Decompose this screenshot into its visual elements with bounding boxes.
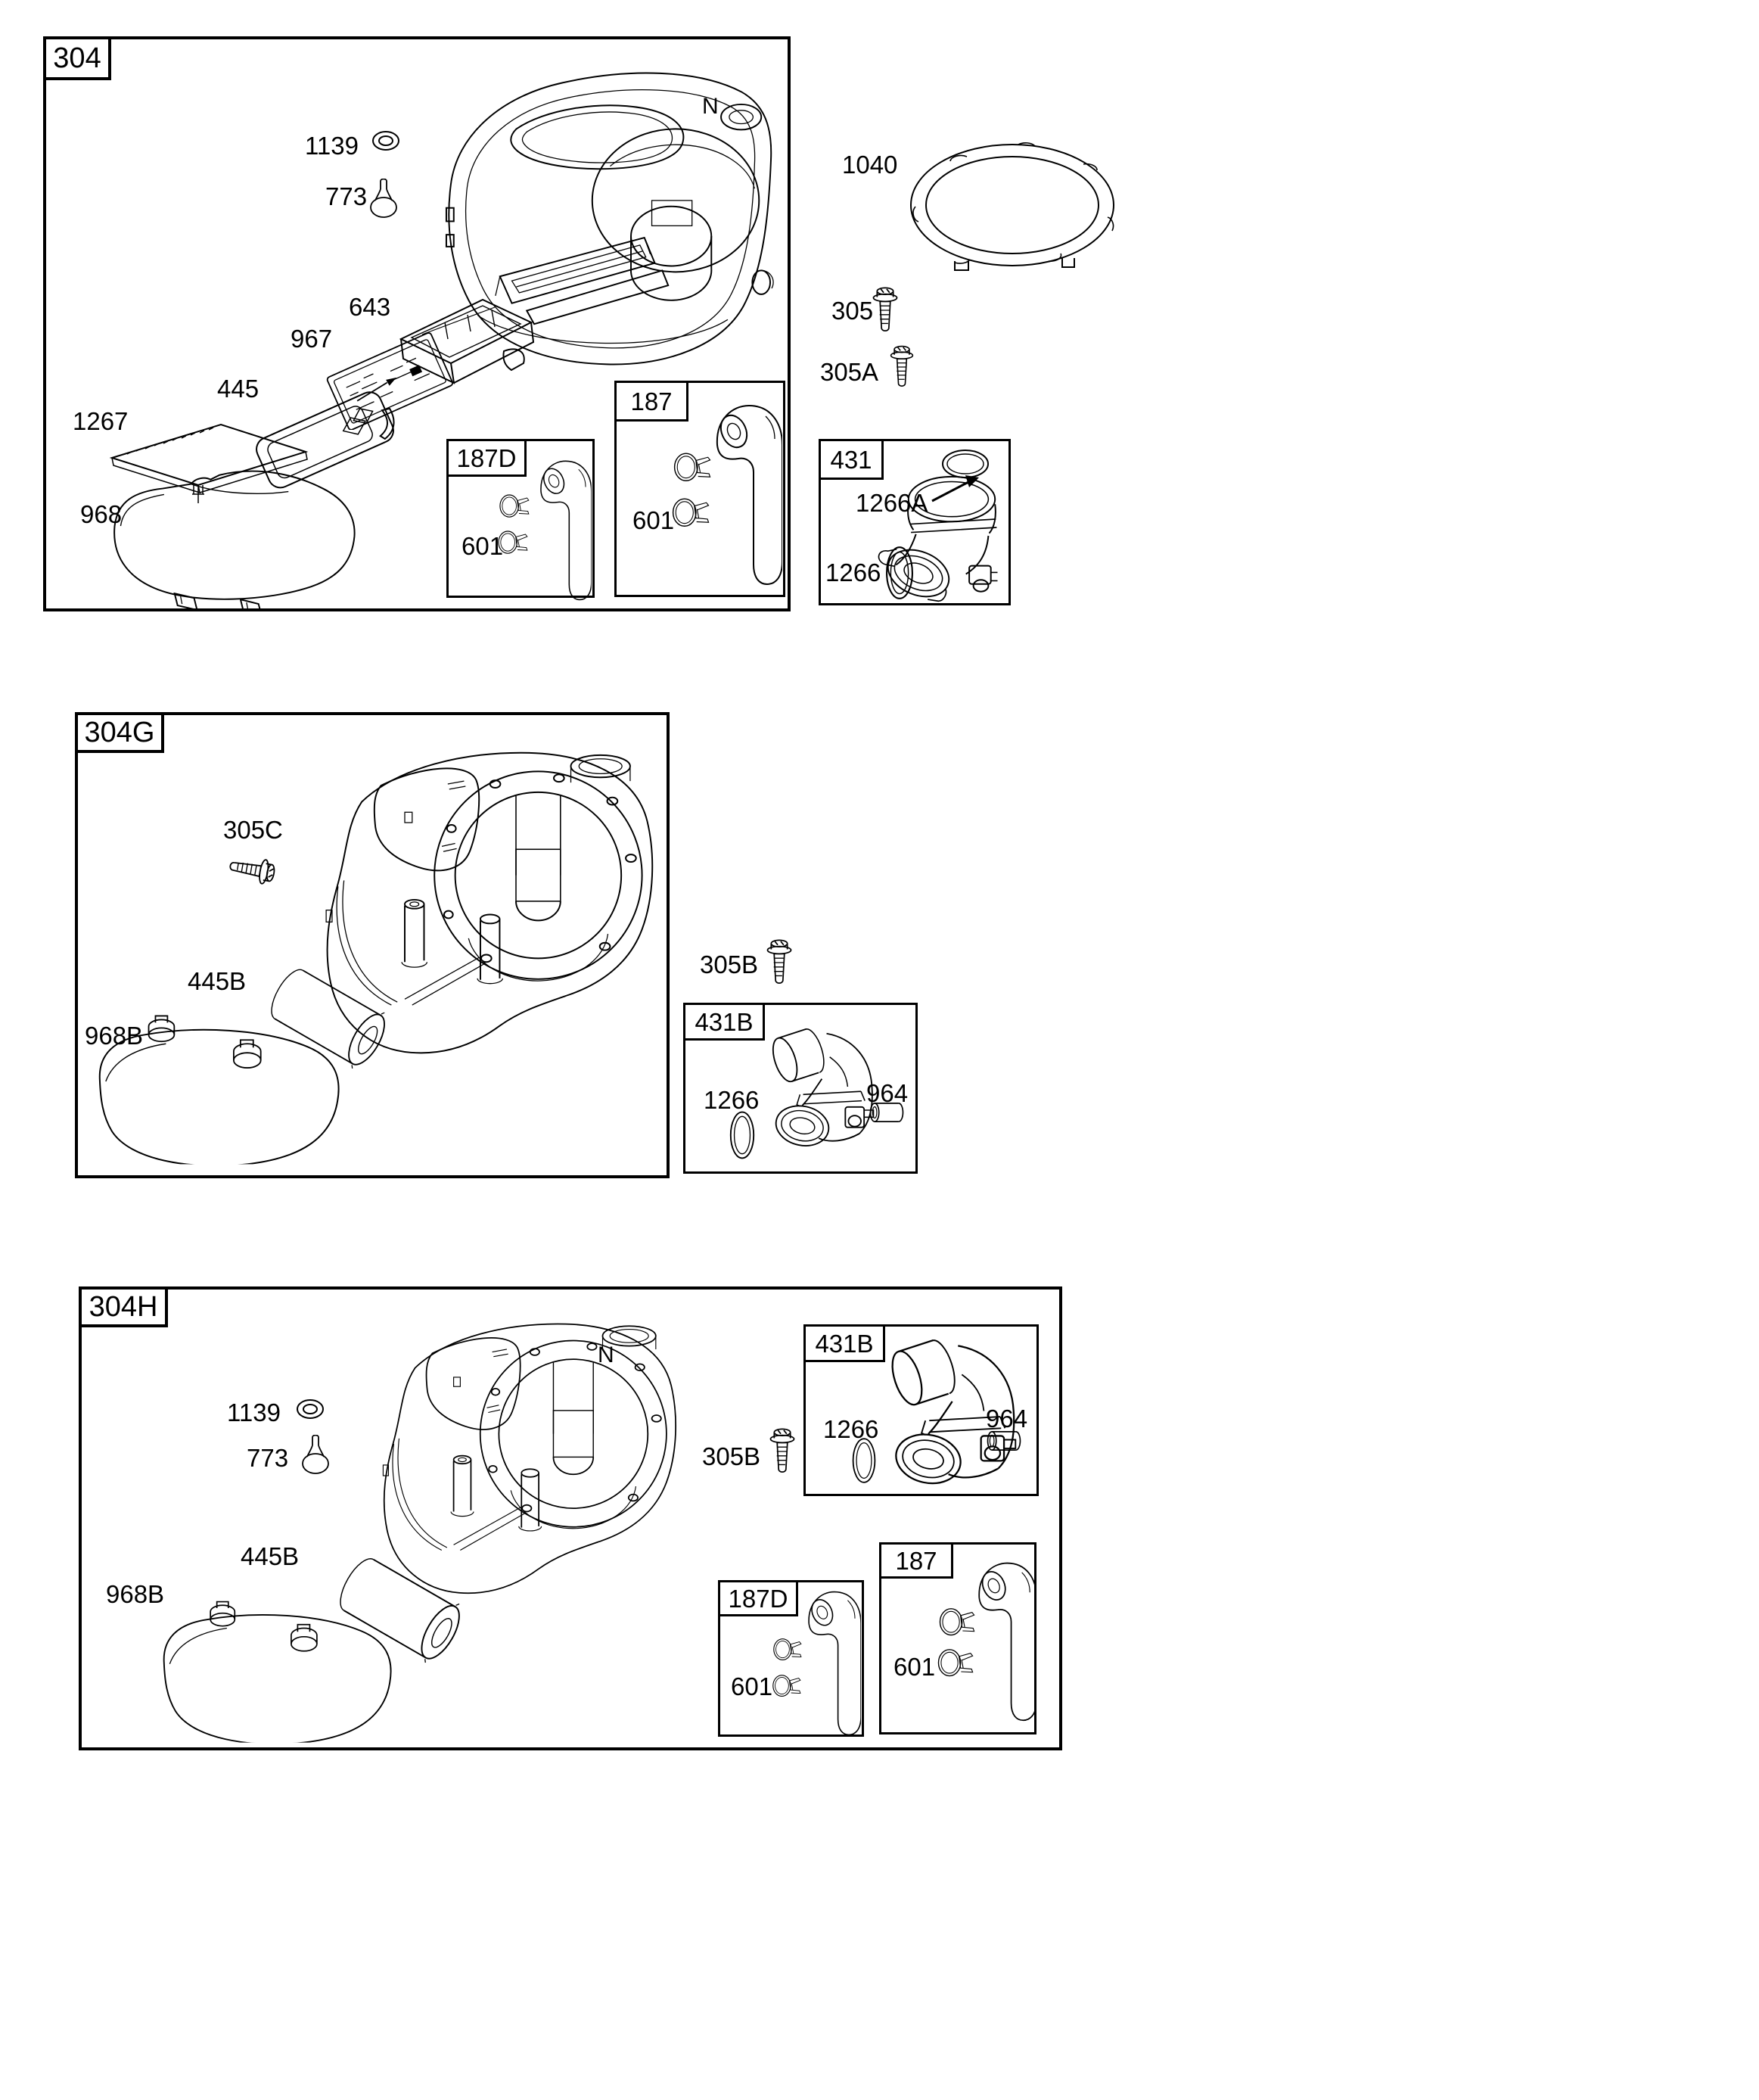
part-label-968B-g: 968B	[85, 1023, 143, 1048]
screw-icon-305A	[888, 344, 915, 390]
part-label-305: 305	[831, 298, 873, 323]
part-label-601-187-h: 601	[893, 1654, 935, 1679]
part-label-1266-431: 1266	[825, 560, 881, 585]
housing-cast-mark-304: N	[702, 95, 719, 118]
o-ring-icon-1266-h	[850, 1436, 878, 1485]
base-icon-968B-g	[83, 981, 354, 1174]
part-label-1139: 1139	[305, 133, 359, 158]
inset-label-187-h: 187	[895, 1548, 937, 1573]
inset-label-187: 187	[630, 389, 672, 414]
hose-clamp-icon-187-2	[670, 495, 710, 529]
base-icon-968	[101, 454, 365, 610]
plug-icon-773-h	[300, 1435, 331, 1476]
part-label-601-187D-h: 601	[731, 1674, 772, 1699]
part-label-968: 968	[80, 502, 122, 527]
inset-label-187D-h: 187D	[729, 1586, 788, 1611]
hose-clamp-icon-187-h-2	[936, 1646, 974, 1678]
hose-clamp-icon-187D-h-2	[771, 1672, 801, 1698]
retainer-ring-icon-1040	[905, 138, 1120, 275]
part-label-967: 967	[291, 326, 332, 351]
part-label-305C: 305C	[223, 817, 283, 842]
breather-tube-icon-187D-h	[799, 1585, 862, 1736]
part-label-1266-h: 1266	[823, 1417, 878, 1442]
section-tab-304: 304	[43, 36, 111, 80]
part-label-1266A: 1266A	[856, 490, 928, 515]
o-ring-icon-1266-g	[728, 1109, 757, 1161]
base-icon-968B-h	[148, 1573, 406, 1748]
part-label-305A: 305A	[820, 359, 878, 384]
part-label-445: 445	[217, 376, 259, 401]
breather-tube-icon-187	[706, 397, 783, 586]
part-label-601-187: 601	[632, 508, 674, 533]
inset-tab-187D: 187D	[446, 439, 527, 477]
section-label-304G: 304G	[85, 718, 155, 747]
o-ring-icon-1266-431	[882, 545, 917, 601]
washer-icon-1139	[371, 129, 401, 153]
inset-tab-187: 187	[614, 381, 688, 422]
inset-label-187D: 187D	[457, 446, 517, 471]
inset-tab-187-h: 187	[879, 1542, 953, 1579]
inset-tab-431B-h: 431B	[803, 1324, 885, 1362]
breather-tube-icon-187-h	[970, 1551, 1036, 1725]
washer-icon-1139-h	[295, 1397, 325, 1421]
inset-tab-187D-h: 187D	[718, 1580, 798, 1616]
part-label-968B-h: 968B	[106, 1582, 164, 1607]
inset-label-431B-h: 431B	[815, 1331, 873, 1356]
inset-label-431: 431	[830, 447, 872, 472]
part-label-1267: 1267	[73, 409, 128, 434]
part-label-773: 773	[325, 184, 367, 209]
part-label-964-g: 964	[866, 1081, 908, 1106]
screw-icon-305B-g	[764, 938, 794, 987]
hose-clamp-icon-187-h-1	[937, 1605, 975, 1638]
screw-icon-305	[870, 286, 900, 334]
part-label-445B-g: 445B	[188, 969, 246, 994]
part-label-305B-g: 305B	[700, 952, 758, 977]
housing-cast-mark-304H: N	[598, 1344, 614, 1367]
plug-icon-773	[368, 179, 399, 219]
sleeve-icon-964-h	[985, 1430, 1023, 1451]
inset-tab-431B-g: 431B	[683, 1003, 765, 1041]
part-label-445B-h: 445B	[241, 1544, 299, 1569]
part-label-643: 643	[349, 294, 390, 319]
section-label-304H: 304H	[89, 1293, 158, 1321]
part-label-773-h: 773	[247, 1445, 288, 1470]
section-tab-304H: 304H	[79, 1286, 168, 1327]
part-label-1139-h: 1139	[227, 1400, 281, 1425]
section-tab-304G: 304G	[75, 712, 164, 753]
part-label-1040: 1040	[842, 152, 897, 177]
hose-clamp-icon-187D-h-1	[772, 1636, 802, 1662]
part-label-601-187D: 601	[462, 534, 503, 558]
part-label-964-h: 964	[986, 1406, 1027, 1431]
breather-tube-icon-187D	[527, 454, 597, 601]
part-label-1266-g: 1266	[704, 1087, 759, 1112]
hose-clamp-icon-187-1	[672, 450, 711, 484]
hose-clamp-icon-187D-1	[498, 492, 530, 519]
screw-icon-305B-h	[767, 1427, 797, 1476]
section-label-304: 304	[53, 44, 101, 73]
inset-label-431B-g: 431B	[695, 1010, 753, 1034]
part-label-305B-h: 305B	[702, 1444, 760, 1469]
parts-diagram-canvas: 304 187D 187 431 N 113	[0, 0, 1759, 2100]
